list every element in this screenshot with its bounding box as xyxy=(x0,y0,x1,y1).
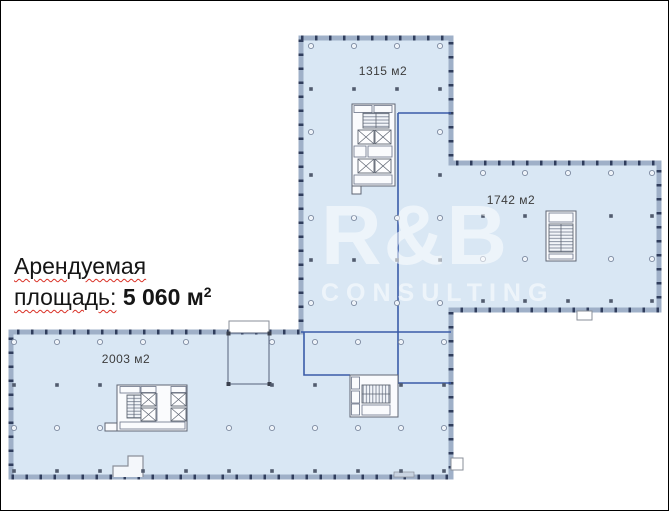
area-label-south-wing: 2003 м2 xyxy=(102,352,150,366)
east-wing-core xyxy=(546,211,576,261)
area-label-east-wing: 1742 м2 xyxy=(487,193,535,207)
area-label-tower: 1315 м2 xyxy=(359,64,407,78)
entrance-vestibule xyxy=(229,321,269,333)
annotation-line1: Арендуемая xyxy=(14,251,212,282)
area-total-sup: 2 xyxy=(204,284,212,300)
leasable-area-annotation: Арендуемая площадь: 5 060 м2 xyxy=(14,251,212,316)
tower-core xyxy=(352,104,395,194)
area-total-value: 5 060 xyxy=(123,284,181,310)
floor-plan-page: 1315 м2 1742 м2 2003 м2 R&B CONSULTING А… xyxy=(0,0,669,511)
tower-base-stair-core xyxy=(350,375,398,417)
east-wing-exit xyxy=(577,311,592,320)
area-total-unit: м xyxy=(187,284,204,310)
south-wing-core xyxy=(105,385,187,431)
right-wall-bump xyxy=(451,458,463,470)
bottom-wall-tick xyxy=(394,472,414,477)
annotation-line2: площадь: 5 060 м2 xyxy=(14,282,212,316)
